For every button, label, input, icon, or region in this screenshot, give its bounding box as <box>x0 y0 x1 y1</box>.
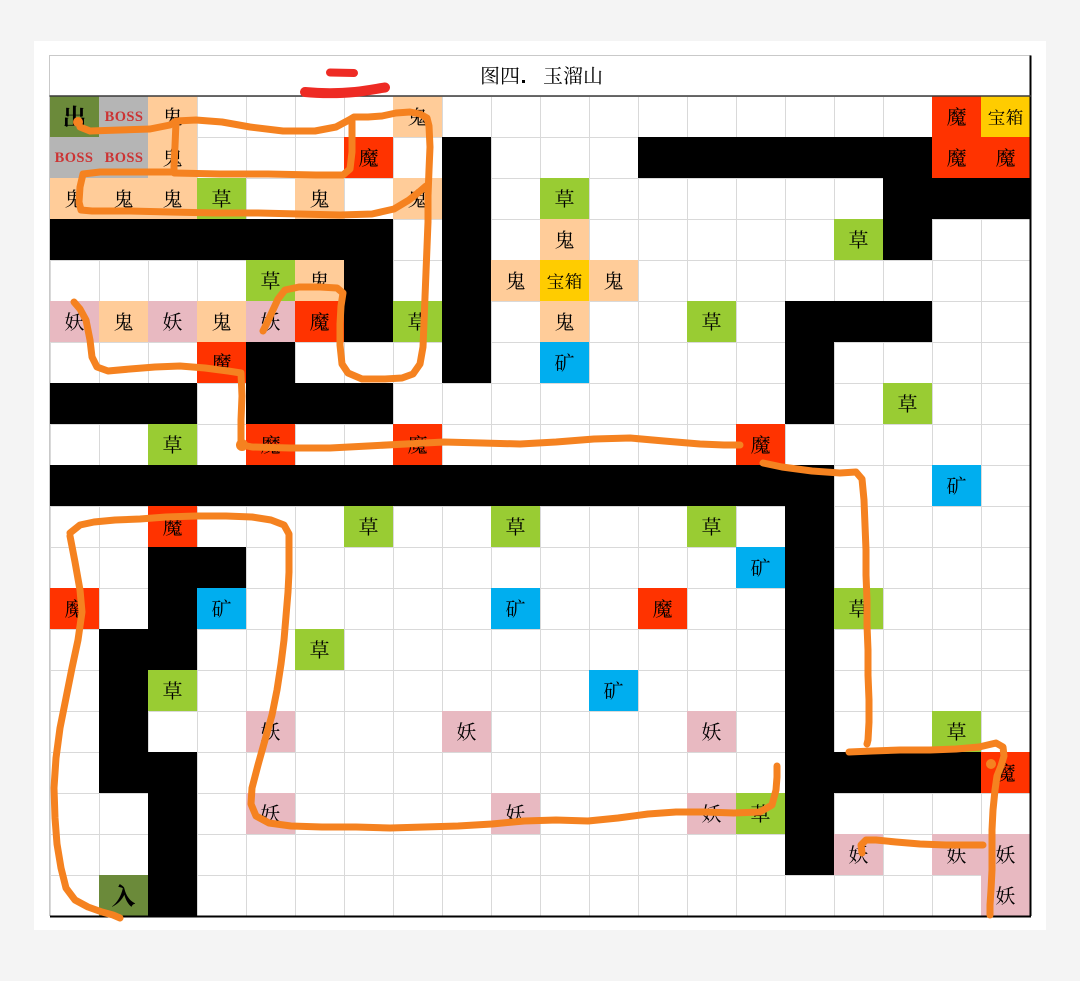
svg-text:BOSS: BOSS <box>105 150 144 166</box>
svg-text:BOSS: BOSS <box>105 109 144 125</box>
svg-text:BOSS: BOSS <box>55 150 94 166</box>
